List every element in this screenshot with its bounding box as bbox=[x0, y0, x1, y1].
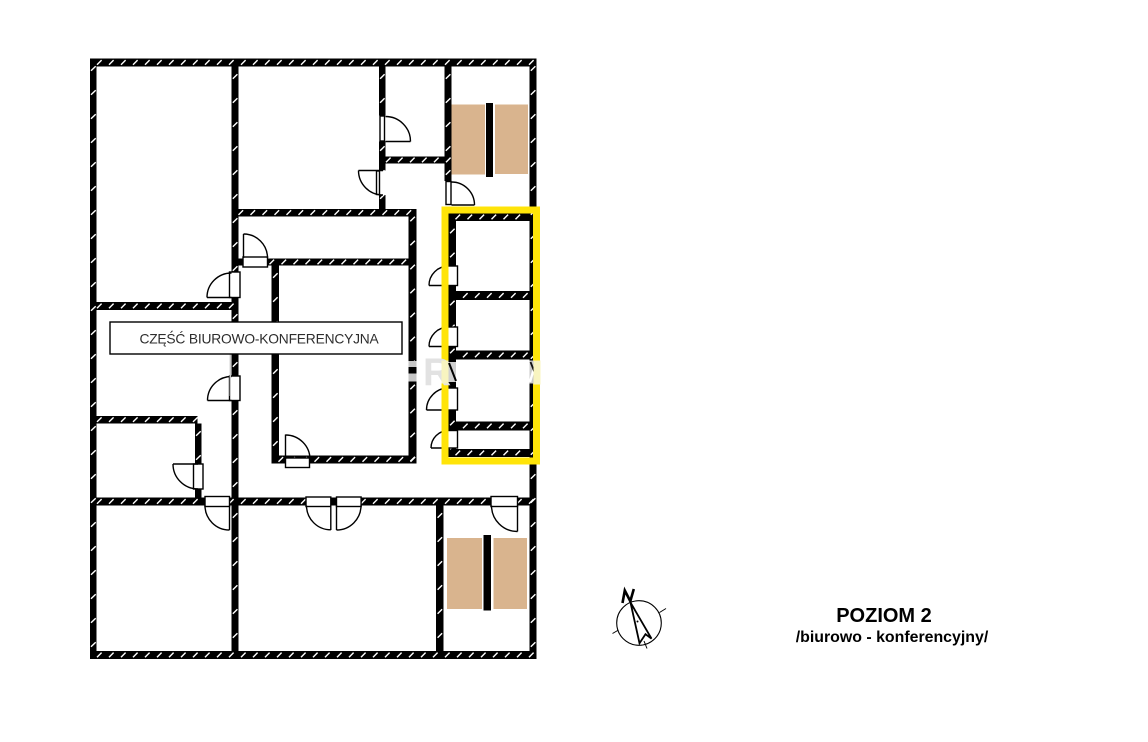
svg-text:CZĘŚĆ BIUROWO-KONFERENCYJNA: CZĘŚĆ BIUROWO-KONFERENCYJNA bbox=[139, 330, 379, 347]
svg-text:/biurowo - konferencyjny/: /biurowo - konferencyjny/ bbox=[796, 629, 989, 646]
svg-text:POZIOM 2: POZIOM 2 bbox=[836, 605, 932, 627]
